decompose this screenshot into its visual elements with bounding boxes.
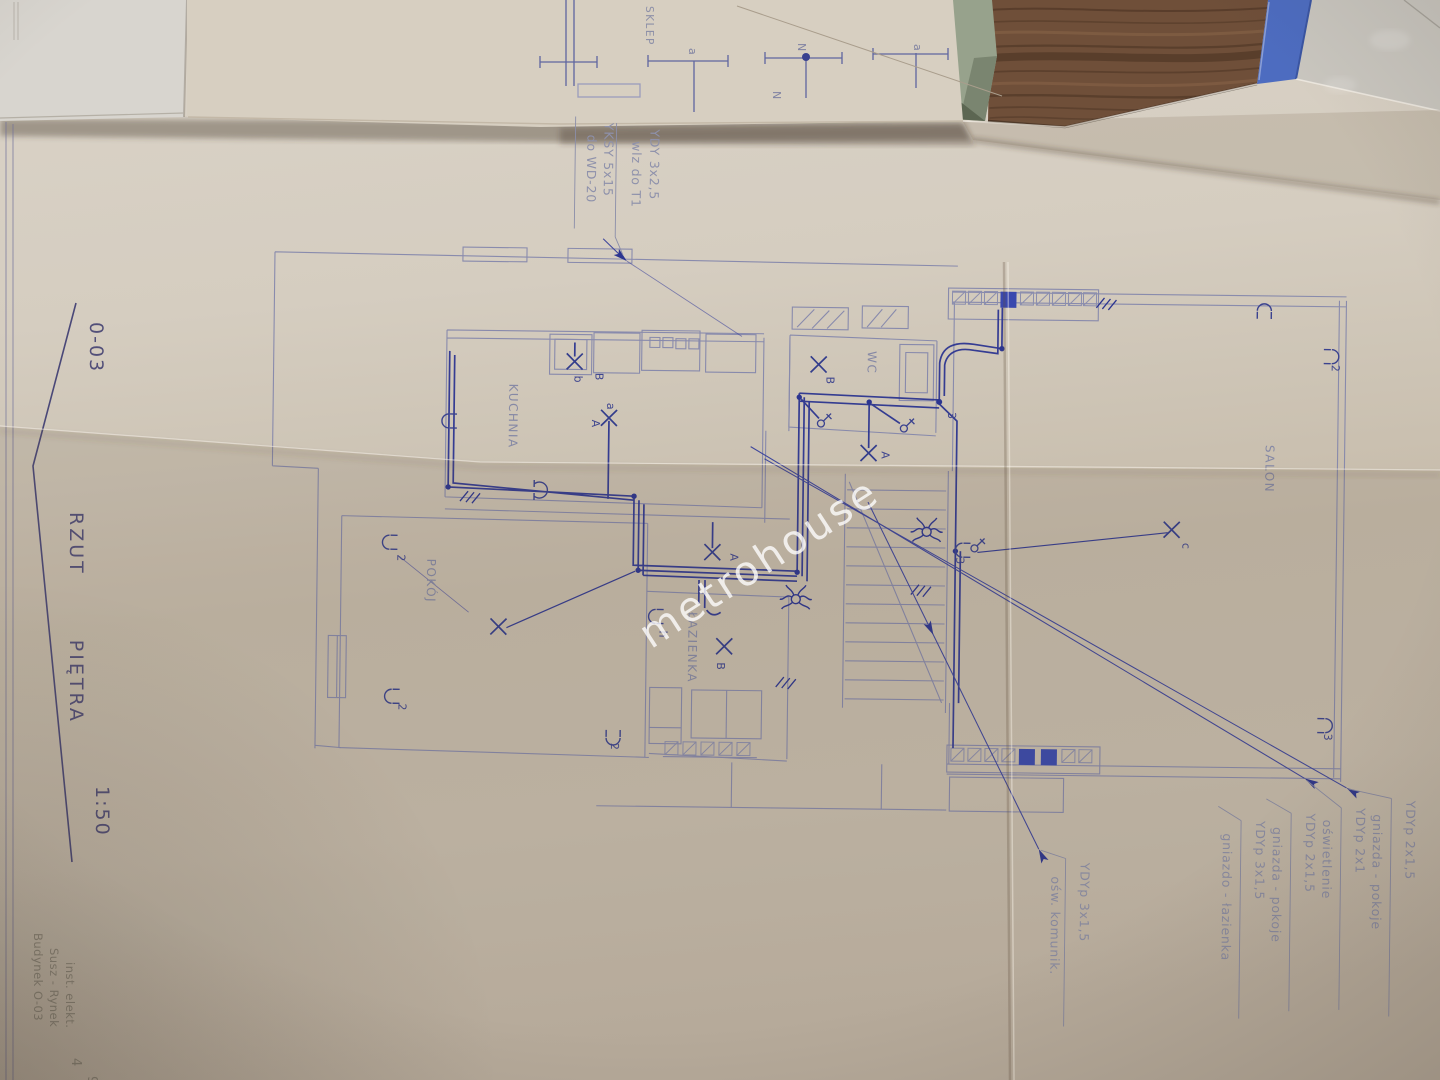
corner-vignette (0, 0, 1440, 1080)
photo-canvas: SKLEP a N N a 0-03 RZUT PIĘTRA 1:50 (0, 0, 1440, 1080)
blueprint-photo: SKLEP a N N a 0-03 RZUT PIĘTRA 1:50 (0, 0, 1440, 1080)
